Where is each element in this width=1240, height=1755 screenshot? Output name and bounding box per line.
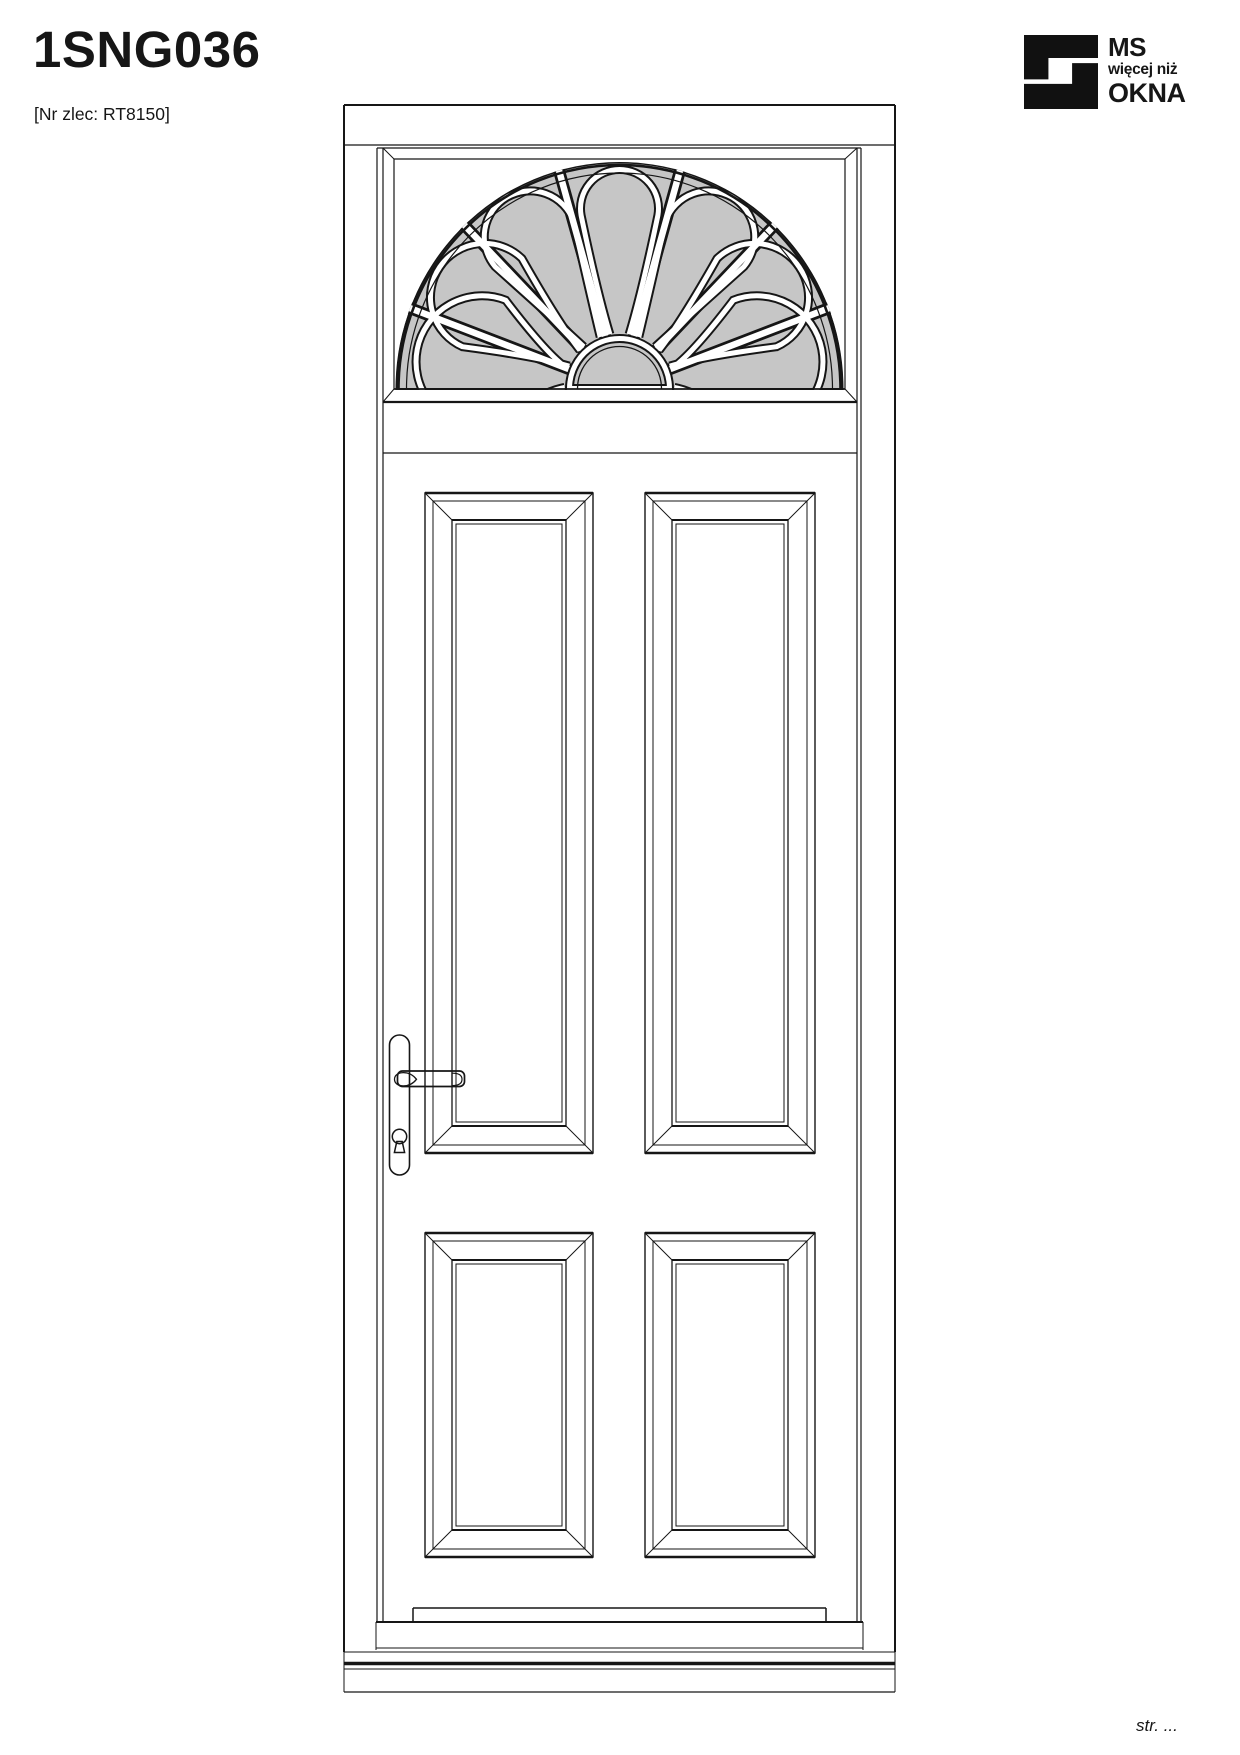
handle-backplate	[390, 1035, 410, 1175]
door-panels	[425, 493, 815, 1557]
fanlight-glazing	[397, 163, 843, 428]
drawing-sheet: 1SNG036 [Nr zlec: RT8150] MS więcej niż …	[0, 0, 1240, 1755]
raised-panel	[425, 493, 593, 1153]
threshold-sill	[344, 1608, 895, 1692]
transom-section	[383, 148, 857, 453]
raised-panel	[645, 493, 815, 1153]
page-number: str. ...	[1136, 1716, 1178, 1736]
raised-panel	[425, 1233, 593, 1557]
handle-lever-cap	[453, 1073, 463, 1085]
door-elevation-drawing	[0, 0, 1240, 1755]
raised-panel	[645, 1233, 815, 1557]
